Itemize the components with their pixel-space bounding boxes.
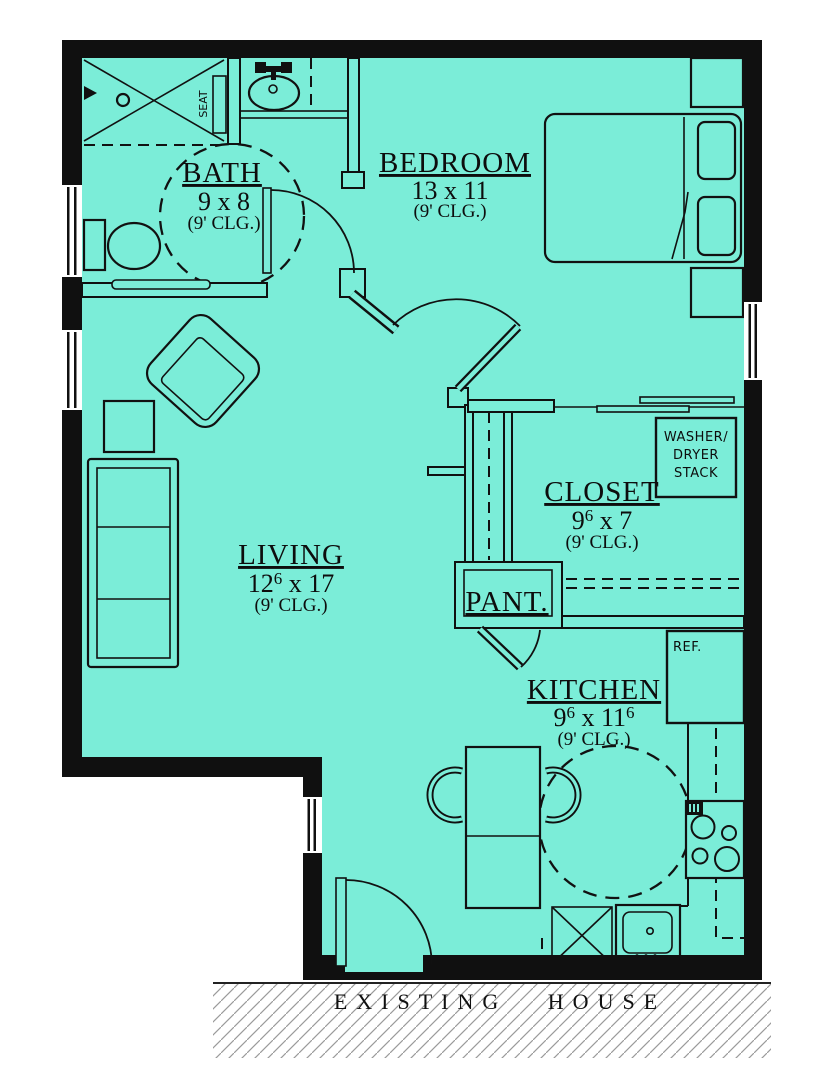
floor-plan-page: EXISTING HOUSE SEAT (0, 0, 825, 1067)
room-dims-living: 126 x 17 (248, 569, 335, 598)
washer-dryer: WASHER/ DRYER STACK (656, 418, 736, 497)
room-label-bath: BATH (182, 157, 262, 189)
window-opening (744, 302, 762, 380)
door-threshold (345, 972, 423, 980)
wall-exterior-right (744, 380, 762, 975)
kitchen-sink (616, 905, 680, 963)
room-label-kitchen: KITCHEN (527, 674, 661, 706)
wall-exterior-top (62, 40, 762, 58)
faucet-spout (271, 71, 276, 80)
bath-ledge (112, 280, 210, 289)
window-pane-line (749, 304, 752, 378)
refrigerator: REF. (667, 631, 744, 723)
room-label-living: LIVING (238, 539, 344, 571)
room-ceiling-kitchen: (9' CLG.) (557, 729, 630, 750)
window-living (62, 330, 82, 410)
door-leaf (263, 188, 271, 273)
existing-house-label: EXISTING HOUSE (334, 989, 666, 1014)
sliding-door-panel (640, 397, 734, 403)
window-opening (303, 797, 322, 853)
window-pane-line (67, 332, 70, 408)
pillow (698, 122, 735, 179)
control-tick (697, 804, 699, 812)
wall-bedroom-bottom (468, 400, 554, 412)
window-closet (744, 302, 762, 380)
control-tick (693, 804, 695, 812)
wall-hall-return (428, 467, 466, 475)
nightstand (691, 268, 743, 317)
washer-dryer-label: DRYER (673, 448, 719, 463)
window-pane-line (67, 187, 70, 275)
window-pane-line (755, 304, 758, 378)
nightstand (691, 58, 743, 107)
cooktop (686, 801, 744, 878)
toilet-bowl (108, 223, 160, 269)
window-opening (62, 185, 82, 277)
wall-closet-left (465, 405, 473, 565)
control-tick (689, 804, 691, 812)
shower-drain (117, 94, 129, 106)
room-label-closet: CLOSET (544, 476, 660, 508)
wall-bath-bedroom (348, 58, 359, 174)
toilet-tank (84, 220, 105, 270)
window-pane-line (74, 187, 77, 275)
window-kitchen (303, 797, 322, 853)
bed (545, 114, 741, 262)
wall-exterior-left (62, 410, 82, 777)
wall-bottom (423, 955, 762, 980)
wall-kitchen-top (562, 616, 744, 628)
toilet (84, 220, 160, 270)
vanity-counter-edge (233, 111, 348, 118)
sliding-door-panel (597, 406, 689, 412)
washer-dryer-label: WASHER/ (664, 430, 728, 445)
wall-living-bottom (62, 757, 322, 777)
room-dims-kitchen: 96 x 116 (553, 703, 634, 732)
room-dims-closet: 96 x 7 (572, 506, 633, 535)
room-ceiling-living: (9' CLG.) (254, 595, 327, 616)
faucet-handle (255, 62, 266, 73)
room-ceiling-closet: (9' CLG.) (565, 532, 638, 553)
washer-dryer-label: STACK (674, 466, 718, 481)
wall-exterior-left (62, 40, 82, 185)
window-pane-line (74, 332, 77, 408)
wall-stub (340, 269, 365, 297)
room-label-pantry: PANT. (465, 586, 548, 618)
sofa-outline (88, 459, 178, 667)
window-pane-line (308, 799, 311, 851)
room-ceiling-bedroom: (9' CLG.) (413, 201, 486, 222)
existing-house-strip: EXISTING HOUSE (213, 983, 771, 1058)
wall-stub (342, 172, 364, 188)
window-bath (62, 185, 82, 277)
room-dims-bath: 9 x 8 (198, 187, 250, 216)
room-label-bedroom: BEDROOM (379, 147, 531, 179)
pillow (698, 197, 735, 255)
window-pane-line (314, 799, 317, 851)
faucet-handle (281, 62, 292, 73)
floor-plan-svg: EXISTING HOUSE SEAT (0, 0, 825, 1067)
refrigerator-label: REF. (673, 640, 702, 655)
wall-kitchen-left (303, 777, 322, 797)
shower-seat (213, 76, 226, 133)
pantry-label-group: PANT. (465, 586, 548, 618)
wall-shower-divider (228, 58, 240, 144)
wall-exterior-right (744, 40, 762, 302)
wall-exterior-left (62, 277, 82, 330)
wall-kitchen-left (303, 853, 322, 955)
door-leaf (336, 878, 346, 966)
dining-table (466, 747, 540, 908)
end-table (104, 401, 154, 452)
wall-closet-right (504, 405, 512, 565)
room-ceiling-bath: (9' CLG.) (187, 213, 260, 234)
window-opening (62, 330, 82, 410)
seat-label: SEAT (197, 90, 210, 118)
sofa (88, 459, 178, 667)
